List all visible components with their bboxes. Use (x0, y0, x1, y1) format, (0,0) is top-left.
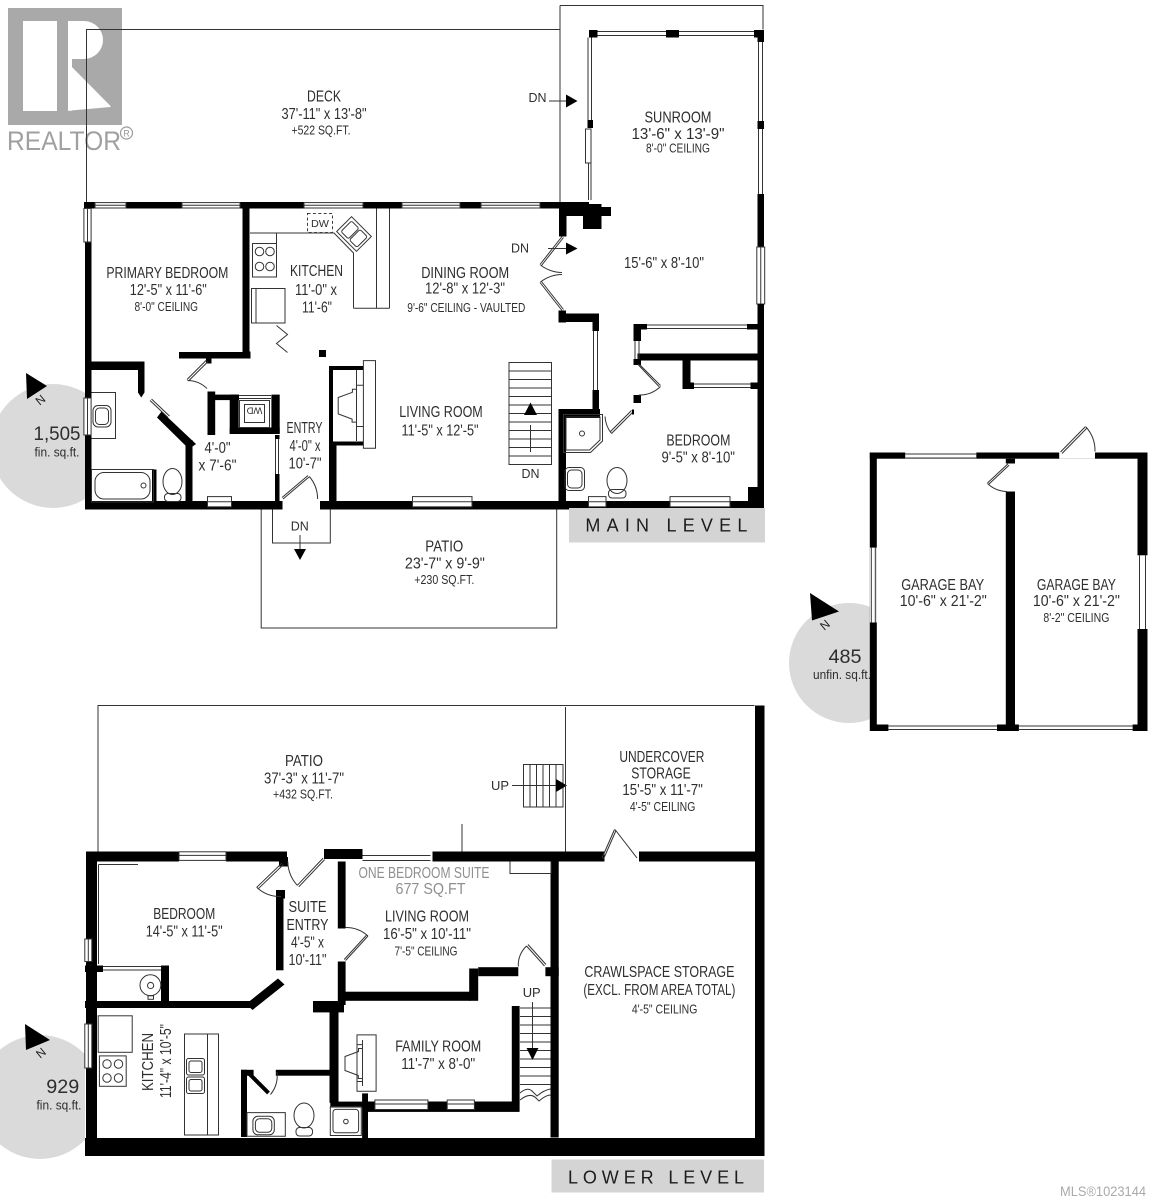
svg-text:GARAGE BAY: GARAGE BAY (901, 577, 984, 594)
svg-text:4'-5" CEILING: 4'-5" CEILING (632, 1002, 698, 1017)
svg-text:DN: DN (529, 90, 547, 105)
svg-text:PATIO: PATIO (285, 753, 323, 770)
svg-text:unfin. sq.ft.: unfin. sq.ft. (813, 668, 871, 682)
svg-text:11'-6": 11'-6" (302, 300, 332, 317)
svg-text:4'-0": 4'-0" (205, 440, 231, 457)
svg-text:929: 929 (46, 1077, 79, 1098)
svg-text:MLS®1023144: MLS®1023144 (1060, 1184, 1146, 1199)
svg-text:4'-0" x: 4'-0" x (290, 438, 321, 455)
svg-text:KITCHEN: KITCHEN (140, 1033, 157, 1091)
svg-text:16'-5" x 10'-11": 16'-5" x 10'-11" (383, 926, 471, 943)
svg-text:PRIMARY BEDROOM: PRIMARY BEDROOM (106, 265, 228, 282)
svg-text:677 SQ.FT: 677 SQ.FT (396, 881, 466, 898)
svg-text:R: R (123, 129, 130, 139)
svg-text:fin. sq.ft.: fin. sq.ft. (35, 446, 80, 460)
svg-text:10'-6" x 21'-2": 10'-6" x 21'-2" (900, 593, 987, 610)
svg-text:11'-0" x: 11'-0" x (295, 282, 337, 299)
svg-text:14'-5" x 11'-5": 14'-5" x 11'-5" (146, 924, 223, 941)
svg-text:12'-8" x 12'-3": 12'-8" x 12'-3" (425, 281, 505, 298)
svg-text:DN: DN (522, 466, 540, 481)
svg-text:SUITE: SUITE (289, 899, 327, 916)
svg-text:ENTRY: ENTRY (287, 420, 323, 437)
svg-text:x 7'-6": x 7'-6" (199, 458, 237, 475)
svg-text:15'-6" x 8'-10": 15'-6" x 8'-10" (624, 255, 704, 272)
svg-text:8'-0" CEILING: 8'-0" CEILING (135, 299, 199, 314)
svg-text:fin. sq.ft.: fin. sq.ft. (37, 1099, 82, 1113)
svg-text:+230 SQ.FT.: +230 SQ.FT. (414, 572, 474, 587)
svg-text:9'-5" x 8'-10": 9'-5" x 8'-10" (661, 450, 735, 467)
svg-text:11'-4" x 10'-5": 11'-4" x 10'-5" (158, 1024, 175, 1098)
svg-text:UP: UP (491, 778, 509, 793)
svg-text:FAMILY ROOM: FAMILY ROOM (395, 1039, 481, 1056)
svg-text:BEDROOM: BEDROOM (666, 432, 730, 449)
svg-text:8'-0" CEILING: 8'-0" CEILING (646, 141, 710, 156)
svg-text:WD: WD (246, 405, 262, 416)
svg-text:ONE BEDROOM SUITE: ONE BEDROOM SUITE (359, 865, 490, 882)
svg-text:BEDROOM: BEDROOM (153, 906, 215, 923)
svg-text:11'-5" x 12'-5": 11'-5" x 12'-5" (402, 422, 479, 439)
svg-text:8'-2" CEILING: 8'-2" CEILING (1043, 610, 1109, 625)
svg-text:37'-3" x 11'-7": 37'-3" x 11'-7" (264, 771, 344, 788)
svg-text:9'-6" CEILING - VAULTED: 9'-6" CEILING - VAULTED (407, 300, 525, 315)
svg-text:UP: UP (523, 985, 541, 1000)
svg-text:KITCHEN: KITCHEN (290, 263, 343, 280)
svg-text:10'-6" x 21'-2": 10'-6" x 21'-2" (1033, 593, 1120, 610)
svg-text:LIVING ROOM: LIVING ROOM (385, 909, 469, 926)
svg-text:CRAWLSPACE STORAGE: CRAWLSPACE STORAGE (584, 964, 734, 981)
svg-text:4'-5" CEILING: 4'-5" CEILING (630, 799, 696, 814)
svg-text:UNDERCOVER: UNDERCOVER (619, 749, 704, 766)
svg-text:DN: DN (291, 519, 309, 534)
svg-text:23'-7" x 9'-9": 23'-7" x 9'-9" (405, 556, 485, 573)
svg-text:SUNROOM: SUNROOM (645, 110, 712, 127)
svg-text:DW: DW (311, 218, 329, 230)
svg-text:4'-5" x: 4'-5" x (291, 935, 324, 952)
svg-text:11'-7" x 8'-0": 11'-7" x 8'-0" (401, 1056, 475, 1073)
svg-text:+522 SQ.FT.: +522 SQ.FT. (292, 123, 351, 138)
svg-text:PATIO: PATIO (425, 539, 463, 556)
svg-text:DECK: DECK (307, 89, 341, 106)
svg-text:+432 SQ.FT.: +432 SQ.FT. (273, 787, 333, 802)
svg-text:REALTOR: REALTOR (7, 126, 121, 156)
svg-text:10'-11": 10'-11" (289, 952, 327, 969)
svg-text:DINING ROOM: DINING ROOM (421, 265, 509, 282)
svg-text:STORAGE: STORAGE (631, 766, 691, 783)
svg-text:DN: DN (511, 241, 529, 256)
svg-text:12'-5" x 11'-6": 12'-5" x 11'-6" (130, 282, 207, 299)
svg-text:7'-5" CEILING: 7'-5" CEILING (395, 944, 458, 959)
svg-text:ENTRY: ENTRY (287, 917, 329, 934)
svg-text:485: 485 (829, 647, 862, 668)
svg-text:GARAGE BAY: GARAGE BAY (1037, 577, 1116, 594)
svg-text:MAIN LEVEL: MAIN LEVEL (585, 515, 747, 535)
svg-text:15'-5" x 11'-7": 15'-5" x 11'-7" (622, 782, 703, 799)
svg-text:1,505: 1,505 (34, 424, 81, 445)
svg-text:LIVING ROOM: LIVING ROOM (399, 404, 483, 421)
svg-text:(EXCL. FROM AREA TOTAL): (EXCL. FROM AREA TOTAL) (583, 982, 735, 999)
svg-text:37'-11" x 13'-8": 37'-11" x 13'-8" (282, 106, 367, 123)
svg-text:10'-7": 10'-7" (289, 456, 322, 473)
